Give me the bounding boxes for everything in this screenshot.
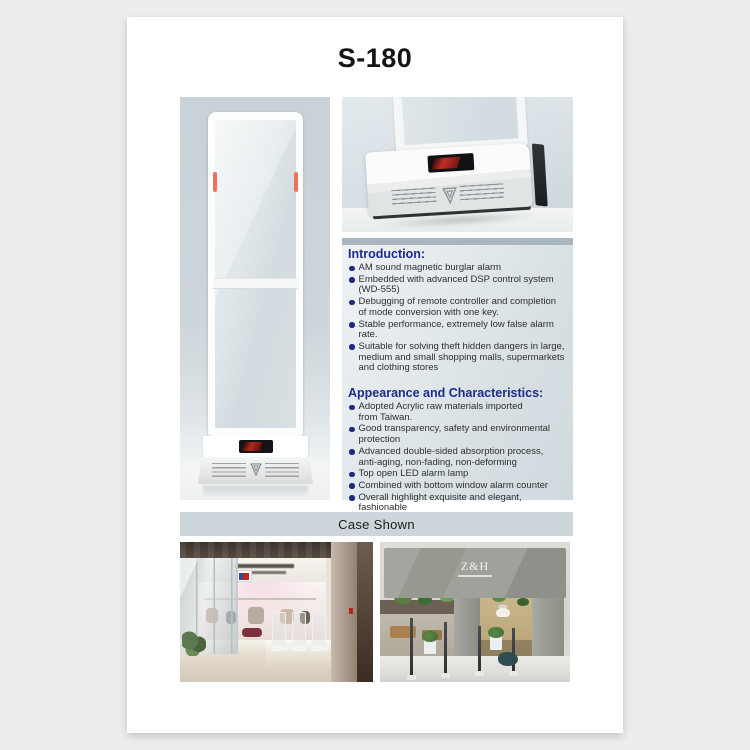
security-gate-pedestal	[444, 622, 447, 674]
concrete-arch-beam: Z&H	[384, 548, 566, 598]
panel-content: Introduction: AM sound magnetic burglar …	[348, 247, 570, 526]
bullet-icon	[349, 300, 355, 306]
case-photo-mall-storefront	[180, 542, 373, 682]
case-photo-zh-store: Z&H	[380, 542, 570, 682]
list-item: Suitable for solving theft hidden danger…	[348, 342, 570, 374]
closeup-grille-left	[391, 187, 436, 206]
logo-red-block	[243, 573, 249, 580]
pedestal-base	[291, 646, 307, 651]
list-item: AM sound magnetic burglar alarm	[348, 263, 570, 274]
plant-decoration	[182, 630, 206, 656]
bullet-icon	[349, 483, 355, 489]
list-item: Combined with bottom window alarm counte…	[348, 481, 570, 492]
closeup-base-unit	[365, 143, 533, 217]
appearance-bullet-list: Adopted Acrylic raw materials imported f…	[348, 402, 570, 525]
interior-dark-band	[380, 600, 458, 614]
closeup-display-red-glow	[431, 157, 460, 170]
security-gate-pedestal	[272, 612, 286, 648]
case-shown-label: Case Shown	[338, 517, 415, 532]
grille-lines-right	[265, 463, 299, 478]
led-strip-right	[294, 172, 298, 192]
bullet-icon	[349, 495, 355, 501]
pedestal-base	[441, 673, 450, 678]
closeup-dark-side-edge	[532, 143, 548, 206]
closeup-group	[342, 97, 573, 232]
bullet-icon	[349, 344, 355, 350]
pedestal-base	[475, 671, 484, 676]
adjacent-dark-storefront	[357, 542, 373, 682]
gate-crossbar	[213, 278, 298, 289]
pedestal-base	[407, 675, 416, 680]
interior-wood-panel	[480, 598, 532, 658]
closeup-alarm-display	[427, 153, 474, 173]
mall-column	[331, 542, 357, 682]
introduction-heading: Introduction:	[348, 247, 570, 261]
closeup-grille-right	[459, 183, 504, 202]
brand-shield-icon	[249, 462, 263, 477]
brochure-page: S-180	[127, 17, 623, 733]
list-item: Advanced double-sided absorption process…	[348, 447, 570, 468]
clothing-pile	[242, 628, 262, 637]
product-render-base-closeup	[342, 97, 573, 232]
gate-frame	[208, 112, 303, 436]
list-item: Good transparency, safety and environmen…	[348, 424, 570, 445]
display-red-glow	[242, 442, 262, 451]
closeup-glass	[400, 97, 518, 145]
bullet-icon	[349, 427, 355, 433]
pedestal-base	[271, 646, 287, 651]
security-gate-pedestal	[478, 626, 481, 672]
list-item: Adopted Acrylic raw materials imported f…	[348, 402, 570, 423]
store-name-sign: Z&H	[384, 559, 566, 574]
plant-foliage	[488, 627, 504, 638]
teal-bag-on-floor	[498, 652, 518, 666]
product-render-full-view	[180, 97, 330, 500]
bullet-icon	[349, 266, 355, 272]
fire-alarm-box	[349, 608, 353, 614]
alarm-counter-display	[239, 440, 273, 453]
pedestal-base	[509, 671, 518, 676]
case-shown-band: Case Shown	[180, 512, 573, 536]
bullet-icon	[349, 449, 355, 455]
security-gate-pedestal	[312, 612, 326, 648]
list-item: Stable performance, extremely low false …	[348, 320, 570, 341]
gate-base-display-section	[203, 436, 308, 457]
plant-foliage	[422, 631, 438, 642]
list-item: Top open LED alarm lamp	[348, 469, 570, 480]
security-gate-pedestal	[410, 618, 413, 676]
pedestal-base	[311, 646, 327, 651]
gate-base-grille-section	[198, 457, 313, 484]
introduction-bullet-list: AM sound magnetic burglar alarm Embedded…	[348, 263, 570, 374]
bullet-icon	[349, 277, 355, 283]
entrance-logo-sign	[236, 570, 252, 582]
pendant-lamp	[496, 608, 510, 617]
panel-top-band	[342, 238, 573, 245]
glass-wall	[180, 558, 238, 654]
clothing-blob	[248, 607, 264, 624]
list-item: Embedded with advanced DSP control syste…	[348, 275, 570, 296]
security-gate-pedestal	[292, 612, 306, 648]
gate-acrylic-panel	[215, 120, 296, 428]
potted-plant	[490, 636, 502, 650]
potted-plant	[424, 640, 436, 654]
info-panel: Introduction: AM sound magnetic burglar …	[342, 238, 573, 500]
store-sign-text-blur	[236, 564, 294, 568]
grille-lines-left	[212, 463, 246, 478]
page-title: S-180	[127, 43, 623, 74]
bullet-icon	[349, 322, 355, 328]
bullet-icon	[349, 472, 355, 478]
led-strip-left	[213, 172, 217, 192]
closeup-brand-shield-icon	[440, 186, 459, 205]
bullet-icon	[349, 405, 355, 411]
list-item: Debugging of remote controller and compl…	[348, 297, 570, 318]
floor-reflection	[203, 486, 308, 497]
store-sign-subline	[458, 575, 492, 577]
appearance-heading: Appearance and Characteristics:	[348, 386, 570, 400]
